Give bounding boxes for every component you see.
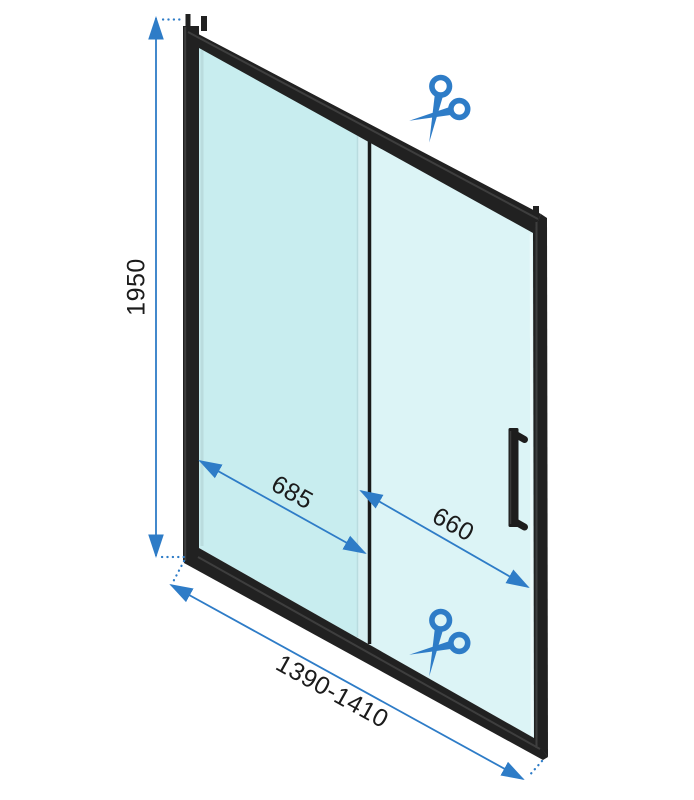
glass-right-edge-line	[531, 234, 532, 736]
height-label: 1950	[123, 258, 152, 316]
shower-door-dimension-diagram: 1950 685 660 1390-1410	[0, 0, 694, 800]
scissors-icon	[405, 608, 475, 682]
glass-fixed-panel	[199, 47, 368, 644]
frame-profile-tab	[201, 16, 207, 31]
glass-panel-overlap-band	[357, 135, 368, 644]
frame-right-bar	[533, 214, 548, 757]
scissors-icon	[405, 74, 475, 148]
door-diagram-svg	[0, 0, 694, 800]
frame-profile-tab	[186, 14, 191, 28]
